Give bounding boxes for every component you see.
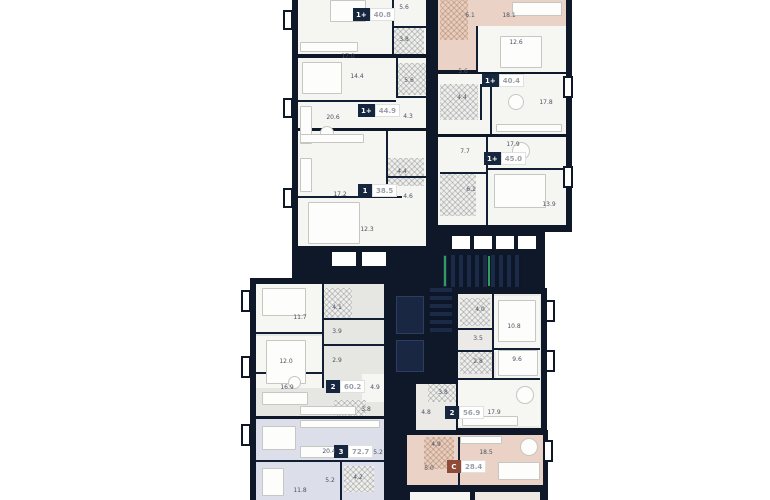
room-area-label: 2.9 (332, 358, 342, 364)
room-area-label: 17.8 (539, 100, 552, 106)
adjacent-room (410, 492, 470, 500)
elevator-door (452, 236, 470, 249)
apartment-area: 60.2 (340, 380, 365, 393)
room-area-label: 4.9 (431, 442, 441, 448)
elevator-shaft (396, 340, 424, 372)
kitchen-counter (300, 134, 364, 143)
interior-wall (256, 332, 322, 334)
apartment-type: 1+ (482, 74, 499, 87)
floor-plan: 1+ 40.8 1+ 44.9 1 38.5 1+ 40.4 1+ 45.0 2… (0, 0, 770, 500)
kitchen-counter (300, 406, 356, 415)
interior-wall (458, 378, 540, 380)
kitchen-counter (300, 42, 358, 52)
apartment-type: C (447, 460, 461, 473)
room-area-label: 4.3 (403, 114, 413, 120)
sofa-furniture (512, 2, 562, 16)
bed-furniture (308, 202, 360, 244)
room-area-label: 9.6 (512, 357, 522, 363)
room-area-label: 11.7 (293, 315, 306, 321)
bed-furniture (498, 462, 540, 480)
interior-wall (458, 350, 494, 352)
interior-wall (322, 318, 384, 320)
apartment-area: 56.9 (459, 406, 484, 419)
apartment-badge[interactable]: 2 56.9 (445, 406, 484, 419)
interior-wall (486, 137, 488, 225)
apartment-area: 40.8 (370, 8, 395, 21)
room-area-label: 17.0 (341, 54, 354, 60)
elevator-door (518, 236, 536, 249)
balcony (241, 290, 251, 312)
room-area-label: 5.6 (458, 69, 468, 75)
apartment-badge[interactable]: 1 38.5 (358, 184, 397, 197)
room-area-label: 6.1 (466, 187, 476, 193)
interior-wall (492, 294, 494, 378)
room-area-label: 17.9 (506, 142, 519, 148)
room-area-label: 14.4 (350, 74, 363, 80)
interior-wall (322, 284, 324, 388)
room-area-label: 5.6 (399, 5, 409, 11)
apartment-area: 45.0 (501, 152, 526, 165)
interior-wall (488, 168, 566, 170)
apartment-area: 44.9 (375, 104, 400, 117)
apartment-type: 3 (334, 445, 348, 458)
kitchen-counter (460, 436, 502, 444)
interior-wall (322, 344, 384, 346)
bathroom (440, 174, 476, 216)
interior-wall (256, 460, 384, 462)
room-area-label: 7.7 (460, 149, 470, 155)
room-area-label: 4.4 (457, 95, 467, 101)
room-area-label: 2.8 (473, 359, 483, 365)
room-area-label: 20.6 (326, 115, 339, 121)
balcony (283, 188, 293, 208)
room-area-label: 17.9 (487, 410, 500, 416)
interior-wall (480, 84, 482, 120)
balcony (283, 98, 293, 118)
room-area-label: 3.8 (361, 407, 371, 413)
room-area-label: 20.4 (322, 449, 335, 455)
apartment-area: 28.4 (461, 460, 486, 473)
room-area-label: 18.1 (502, 13, 515, 19)
apartment-type: 1+ (353, 8, 370, 21)
room-area-label: 5.6 (404, 78, 414, 84)
room-area-label: 3.8 (399, 37, 409, 43)
apartment-badge[interactable]: 1+ 40.8 (353, 8, 395, 21)
room-area-label: 4.9 (370, 385, 380, 391)
bathroom (440, 84, 478, 120)
apartment-type: 1+ (358, 104, 375, 117)
bed-furniture (262, 288, 306, 316)
bathroom (440, 0, 468, 40)
elevator-door (474, 236, 492, 249)
room-area-label: 12.3 (360, 227, 373, 233)
table-furniture (508, 94, 524, 110)
room-area-label: 4.1 (332, 305, 342, 311)
apartment-badge[interactable]: 1+ 44.9 (358, 104, 400, 117)
room-area-label: 16.9 (280, 385, 293, 391)
apartment-area: 38.5 (372, 184, 397, 197)
apartment-area: 72.7 (348, 445, 373, 458)
room-area-label: 17.2 (333, 192, 346, 198)
kitchen-counter (300, 420, 380, 428)
interior-wall (476, 26, 478, 72)
balcony (545, 350, 555, 372)
chair-furniture (516, 386, 534, 404)
staircase (443, 255, 521, 287)
balcony (543, 440, 553, 462)
room-area-label: 4.6 (403, 194, 413, 200)
room-area-label: 11.8 (293, 488, 306, 494)
room-area-label: 18.5 (479, 450, 492, 456)
room-area-label: 5.2 (373, 450, 383, 456)
desk-furniture (262, 468, 284, 496)
sofa-furniture (300, 158, 312, 192)
bed-furniture (498, 300, 536, 342)
balcony (563, 166, 573, 188)
elevator-door (332, 252, 356, 266)
interior-wall (392, 26, 428, 28)
stair-accent (488, 256, 490, 286)
room-area-label: 4.2 (353, 475, 363, 481)
apartment-badge[interactable]: 1+ 45.0 (484, 152, 526, 165)
interior-wall (386, 176, 426, 178)
room-area-label: 4.0 (475, 307, 485, 313)
room-area-label: 3.8 (438, 390, 448, 396)
chair-furniture (520, 438, 538, 456)
room-area-label: 12.0 (279, 359, 292, 365)
apartment-type: 2 (445, 406, 459, 419)
elevator-shaft (396, 296, 424, 334)
apartment-badge[interactable]: 2 60.2 (326, 380, 365, 393)
room-area-label: 10.8 (507, 324, 520, 330)
bed-furniture (498, 350, 538, 376)
kitchen-counter (496, 124, 562, 132)
interior-wall (396, 58, 398, 98)
balcony (545, 300, 555, 322)
balcony (283, 10, 293, 30)
apartment-badge[interactable]: C 28.4 (447, 460, 486, 473)
dining-table-furniture (262, 426, 296, 450)
interior-wall (340, 462, 342, 500)
interior-wall (396, 96, 428, 98)
bed-furniture (302, 62, 342, 94)
balcony (563, 76, 573, 98)
room-area-label: 3.5 (473, 336, 483, 342)
apartment-badge[interactable]: 1+ 40.4 (482, 74, 524, 87)
apartment-type: 1+ (484, 152, 501, 165)
room-area-label: 5.0 (424, 466, 434, 472)
interior-wall (298, 100, 396, 102)
room-area-label: 6.1 (465, 13, 475, 19)
balcony (241, 424, 251, 446)
interior-wall (440, 172, 486, 174)
interior-wall (458, 328, 494, 330)
elevator-door (362, 252, 386, 266)
room-area-label: 12.6 (509, 40, 522, 46)
room-area-label: 4.4 (397, 169, 407, 175)
apartment-type: 2 (326, 380, 340, 393)
balcony (241, 356, 251, 378)
room-area-label: 3.9 (332, 329, 342, 335)
staircase (430, 288, 452, 332)
apartment-badge[interactable]: 3 72.7 (334, 445, 373, 458)
apartment-type: 1 (358, 184, 372, 197)
room-area-label: 5.2 (325, 478, 335, 484)
elevator-door (496, 236, 514, 249)
room-area-label: 13.9 (542, 202, 555, 208)
stair-accent (444, 256, 446, 286)
room-area-label: 4.8 (421, 410, 431, 416)
apartment-area: 40.4 (499, 74, 524, 87)
sofa-furniture (262, 392, 308, 405)
adjacent-room (475, 492, 540, 500)
bed-furniture (494, 174, 546, 208)
